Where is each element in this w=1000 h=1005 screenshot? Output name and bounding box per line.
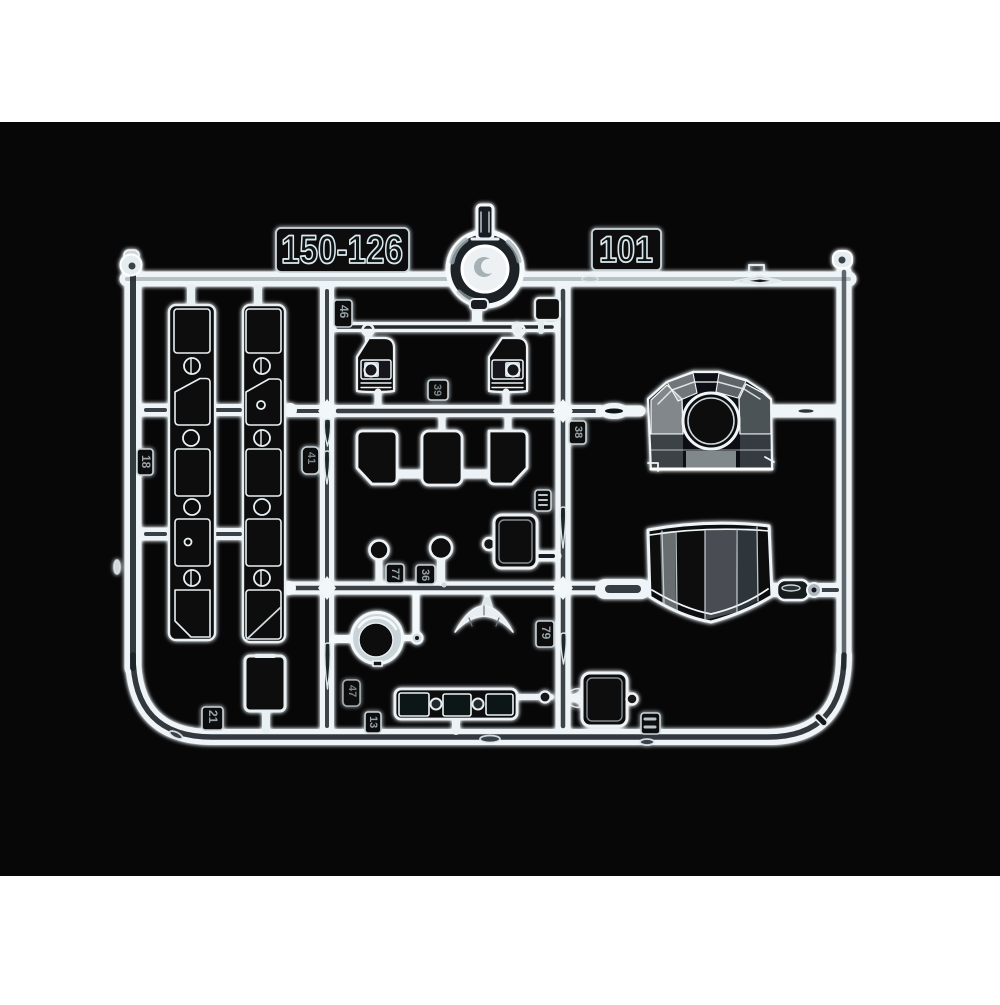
svg-text:13: 13 [367,716,379,728]
svg-text:79: 79 [539,626,553,640]
svg-text:41: 41 [305,452,317,464]
svg-text:18: 18 [139,455,153,469]
svg-text:38: 38 [572,426,584,438]
svg-text:77: 77 [389,568,401,580]
svg-text:39: 39 [431,384,443,396]
svg-text:47: 47 [346,685,358,697]
svg-text:36: 36 [419,569,431,581]
svg-text:101: 101 [599,229,653,270]
svg-text:46: 46 [337,305,351,319]
svg-text:150-126: 150-126 [281,228,403,272]
svg-text:21: 21 [206,710,220,724]
